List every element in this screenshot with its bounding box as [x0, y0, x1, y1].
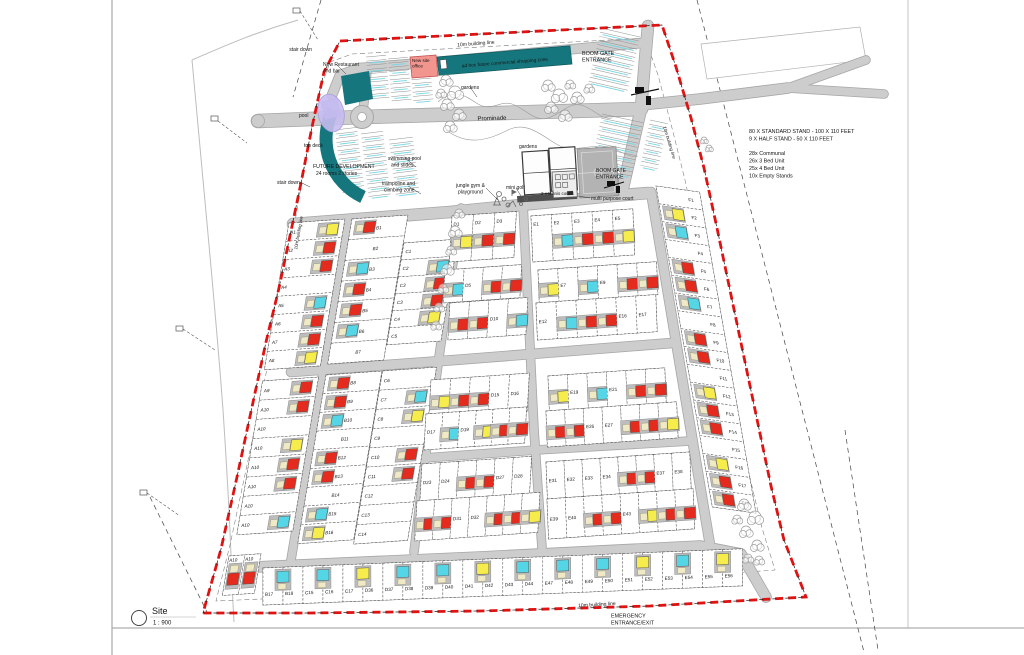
lot-label-E40: E40	[568, 515, 577, 521]
lot-label-C17: C17	[345, 588, 354, 593]
lot-label-C15: C15	[305, 590, 314, 595]
lot-D28: D28	[511, 456, 531, 494]
annotation-27: multi purpose court	[591, 196, 634, 202]
lot-A10: A10	[237, 512, 296, 535]
lot-E32: E32	[564, 459, 583, 497]
lot-B16: B16	[298, 521, 357, 544]
lot-B7: B7	[328, 339, 387, 364]
survey-monument-icon	[140, 490, 147, 495]
tree-icon	[757, 544, 765, 552]
lot-label-D32: D32	[470, 515, 479, 521]
lot-label-E43: E43	[623, 511, 632, 517]
lot-label-D5: D5	[465, 283, 472, 288]
lot-label-D10: D10	[490, 316, 499, 322]
lot-E20: E20	[587, 372, 609, 408]
lot-E34: E34	[600, 457, 619, 495]
site-plan-drawing: A1A2A3A4A5A6A7A8A9A10A10A10A10A10A10A10B…	[0, 0, 1024, 655]
tree-icon	[559, 115, 566, 122]
annotation-5: and bar	[323, 69, 340, 75]
lot-label-E26: E26	[586, 424, 595, 430]
lot-label-A10: A10	[260, 407, 269, 413]
annotation-10: pool	[299, 113, 308, 119]
annotation-11: Prominade	[477, 116, 507, 123]
lot-D9: D9	[467, 300, 490, 338]
lot-E12: E12	[536, 302, 557, 340]
tree-icon	[450, 125, 458, 133]
lot-label-E52: E52	[645, 576, 654, 581]
lot-E31: E31	[546, 461, 565, 499]
lot-label-D42: D42	[485, 583, 494, 588]
annotation-7: office	[412, 64, 423, 69]
annotation-23: mini golf	[506, 185, 525, 191]
lot-label-E1: E1	[533, 221, 539, 226]
annotation-40: 1 : 900	[153, 621, 172, 627]
lot-label-E49: E49	[585, 579, 594, 584]
lot-label-E34: E34	[603, 474, 612, 480]
lot-E4: E4	[592, 210, 615, 257]
lot-label-D40: D40	[445, 584, 454, 589]
lot-D23: D23	[420, 463, 440, 501]
lot-label-A10: A10	[257, 426, 266, 432]
lot-E18: E18	[548, 375, 570, 411]
lot-D7: D7	[500, 265, 523, 299]
lot-label-E12: E12	[539, 319, 548, 325]
tree-icon	[438, 288, 444, 294]
annotation-2: ENTRANCE	[582, 58, 612, 64]
lot-label-D17: D17	[427, 429, 436, 435]
lot-label-E19: E19	[570, 389, 579, 395]
block-corner-pair: A10A10	[222, 554, 261, 596]
drawing-number-circle	[132, 611, 147, 626]
lot-label-D36: D36	[365, 588, 374, 593]
lot-label-D39: D39	[425, 585, 434, 590]
lot-D6: D6	[481, 266, 504, 300]
lot-D24: D24	[438, 461, 458, 499]
lot-E2: E2	[551, 213, 574, 260]
tree-icon	[738, 504, 745, 511]
lot-E39: E39	[547, 498, 567, 539]
tree-icon	[755, 516, 764, 525]
annotation-33: 10x Empty Stands	[749, 174, 793, 180]
lot-E22: E22	[626, 369, 648, 405]
annotation-15: stair down	[277, 180, 300, 186]
tree-icon	[431, 325, 437, 331]
lot-E27: E27	[602, 406, 622, 443]
lot-D5: D5	[462, 267, 483, 301]
tree-icon	[446, 79, 454, 87]
annotation-4: New Restaurant	[323, 62, 359, 68]
tree-icon	[551, 94, 559, 102]
lot-D32: D32	[467, 496, 487, 537]
lot-label-E17: E17	[638, 312, 647, 318]
annotation-31: 26x 3 Bed Unit	[749, 159, 785, 165]
lot-label-D28: D28	[514, 473, 523, 479]
lot-label-D15: D15	[491, 392, 500, 398]
lot-label-E38: E38	[674, 469, 683, 475]
lot-E8: E8	[577, 266, 599, 300]
lot-B6: B6	[331, 319, 390, 344]
lot-E38: E38	[672, 452, 691, 490]
tree-icon	[565, 84, 571, 90]
lot-D11: D11	[506, 297, 529, 335]
tree-icon	[548, 84, 556, 92]
lot-label-A10: A10	[229, 557, 238, 563]
lot-E23: E23	[645, 368, 667, 404]
tree-icon	[584, 88, 590, 94]
tree-icon	[449, 231, 456, 238]
lot-E28: E28	[620, 404, 642, 441]
tree-icon	[447, 103, 455, 111]
tree-icon	[446, 250, 452, 256]
lot-label-B11: B11	[340, 436, 349, 442]
lot-D12: D12	[429, 379, 452, 418]
lot-E15: E15	[596, 297, 618, 335]
tree-icon	[754, 560, 760, 566]
lot-D8: D8	[448, 302, 471, 340]
lot-label-D24: D24	[441, 478, 450, 484]
tree-icon	[440, 80, 447, 87]
survey-monument-icon	[176, 326, 183, 331]
lot-label-D2: D2	[475, 220, 482, 225]
annotation-17: and slides	[391, 163, 414, 169]
lot-label-E16: E16	[618, 313, 627, 319]
lot-label-B14: B14	[331, 492, 340, 498]
annotation-37: EMERGENCY	[611, 614, 646, 620]
lot-label-E27: E27	[605, 422, 614, 428]
lot-E17: E17	[636, 295, 657, 333]
lot-label-E51: E51	[625, 577, 634, 582]
lot-label-E48: E48	[565, 580, 574, 585]
lot-label-E55: E55	[705, 574, 714, 579]
lot-D27: D27	[493, 458, 513, 496]
lot-label-B16: B16	[325, 530, 334, 536]
lot-E5: E5	[612, 209, 635, 256]
annotation-39: Site	[152, 606, 168, 616]
annotation-1: BOOM GATE	[582, 51, 615, 57]
lot-label-B15: B15	[328, 511, 337, 517]
tree-icon	[700, 140, 704, 144]
tree-icon	[571, 97, 578, 104]
lot-E9: E9	[597, 264, 618, 298]
tree-icon	[542, 85, 549, 92]
lot-label-C14: C14	[358, 532, 368, 538]
annotation-24: 2 x tennis courts	[541, 191, 575, 196]
lot-label-C11: C11	[367, 474, 376, 480]
annotation-14: 24 rooms 2 stories	[316, 171, 358, 177]
lot-label-E53: E53	[665, 576, 674, 581]
block-E-row-3: E12E13E14E15E16E17	[536, 295, 657, 340]
lot-label-A10: A10	[254, 446, 263, 452]
annotation-12: top deck	[304, 143, 323, 149]
annotation-13: FUTURE DEVELOPMENT	[313, 164, 376, 170]
site-plan-sheet: A1A2A3A4A5A6A7A8A9A10A10A10A10A10A10A10B…	[0, 0, 1024, 655]
lot-label-C10: C10	[371, 455, 381, 461]
tree-icon	[565, 114, 573, 122]
annotation-3: stair down	[289, 47, 312, 53]
tree-icon	[732, 519, 738, 525]
annotation-9: gardens	[461, 85, 480, 91]
lot-E3: E3	[572, 212, 595, 259]
tree-icon	[441, 104, 448, 111]
lot-label-E33: E33	[585, 475, 594, 481]
annotation-19: trampoline and	[382, 181, 415, 187]
lot-label-E2: E2	[554, 220, 560, 225]
lot-E14: E14	[576, 299, 598, 337]
lot-D16: D16	[508, 373, 530, 412]
lot-label-E9: E9	[600, 280, 606, 285]
lot-label-B17: B17	[265, 592, 274, 597]
tree-icon	[447, 91, 455, 99]
lot-label-D23: D23	[423, 480, 432, 486]
lot-B3: B3	[342, 257, 401, 282]
tree-icon	[447, 268, 455, 276]
lot-label-A10: A10	[244, 503, 253, 509]
annotation-26: ENTRANCE	[596, 175, 624, 181]
lot-E37: E37	[654, 453, 673, 491]
lot-label-A10: A10	[245, 556, 254, 562]
annotation-25: BOOM GATE	[596, 168, 627, 174]
lot-E42: E42	[601, 494, 624, 535]
tree-icon	[751, 545, 758, 552]
block-D-row-3: D8D9D10D11	[448, 297, 529, 339]
lot-E46: E46	[674, 489, 697, 530]
block-D-row-7: D29D30D31D32D33D34D35	[414, 492, 542, 541]
lot-label-A10: A10	[247, 484, 256, 490]
tree-icon	[744, 503, 752, 511]
annotation-21: jungle gym &	[455, 183, 486, 189]
lot-E10: E10	[617, 263, 639, 297]
annotation-16: swimming pool	[388, 156, 421, 162]
tree-icon	[454, 213, 460, 219]
lot-B1: B1	[349, 215, 408, 240]
tree-icon	[743, 558, 749, 564]
lot-label-B10: B10	[344, 417, 353, 423]
tree-icon	[453, 114, 460, 121]
tree-icon	[455, 230, 463, 238]
lot-D15: D15	[488, 374, 510, 413]
tree-icon	[747, 516, 755, 524]
lot-label-D43: D43	[505, 582, 514, 587]
lot-label-D19: D19	[460, 427, 469, 433]
lot-E13: E13	[556, 300, 578, 338]
lot-label-D27: D27	[496, 475, 505, 481]
lot-E25: E25	[564, 408, 586, 445]
annotation-20: climbing zone	[384, 188, 415, 194]
annotation-28: 80 X STANDARD STAND - 100 X 110 FEET	[749, 129, 855, 135]
lot-label-D38: D38	[405, 586, 414, 591]
lot-label-C16: C16	[325, 589, 334, 594]
lot-label-C13: C13	[361, 512, 371, 518]
lot-label-E7: E7	[560, 283, 566, 288]
annotation-6: New site	[412, 58, 430, 63]
restaurant-building	[341, 71, 373, 105]
tree-icon	[459, 113, 467, 121]
lot-label-D16: D16	[510, 391, 519, 397]
lot-label-E54: E54	[685, 575, 694, 580]
lot-D2: D2	[471, 213, 495, 260]
lot-E24: E24	[545, 410, 567, 447]
tree-icon	[434, 307, 440, 313]
annotation-29: 9 X HALF STAND - 50 X 110 FEET	[749, 137, 834, 143]
lot-label-B12: B12	[337, 455, 346, 461]
lot-label-D37: D37	[385, 587, 394, 592]
lot-E30: E30	[657, 402, 679, 439]
lot-A8: A8	[264, 347, 323, 369]
lot-label-B13: B13	[334, 474, 343, 480]
lot-label-E3: E3	[574, 219, 580, 224]
lot-label-E39: E39	[550, 516, 559, 522]
tree-icon	[455, 91, 464, 100]
annotation-38: ENTRANCE/EXIT	[611, 621, 655, 627]
lot-B4: B4	[338, 277, 397, 302]
lot-E21: E21	[606, 371, 627, 407]
lot-B2: B2	[345, 236, 404, 261]
lot-E33: E33	[582, 458, 601, 496]
lot-label-D44: D44	[525, 581, 534, 586]
lot-label-E32: E32	[567, 476, 576, 482]
lot-D13: D13	[448, 377, 471, 416]
tree-icon	[746, 530, 754, 538]
annotation-32: 25x 4 Bed Unit	[749, 166, 785, 172]
annotation-30: 28x Communal	[749, 151, 785, 157]
lot-label-A10: A10	[251, 465, 260, 471]
lot-label-E56: E56	[725, 573, 734, 578]
tree-icon	[441, 269, 448, 276]
annotation-22: playground	[458, 190, 483, 196]
lot-D3: D3	[492, 211, 516, 258]
lot-label-B18: B18	[285, 591, 294, 596]
block-E-row-1: E1E2E3E4E5	[531, 209, 635, 262]
block-D-row-5: D17D18D19D20D21D22	[424, 407, 529, 450]
lot-E1: E1	[531, 215, 553, 262]
lot-E40: E40	[565, 496, 585, 537]
lot-label-D3: D3	[496, 218, 503, 223]
tree-icon	[740, 531, 747, 538]
lot-label-E21: E21	[609, 387, 618, 393]
lot-E6: E6	[538, 269, 560, 303]
lot-E43: E43	[620, 493, 640, 534]
annotation-18: gardens	[519, 144, 538, 150]
lot-label-D41: D41	[465, 584, 474, 589]
annotation-35: 10m building line	[662, 126, 677, 160]
lot-label-C12: C12	[364, 493, 374, 499]
lot-label-E4: E4	[594, 217, 600, 222]
tree-icon	[436, 93, 442, 99]
tree-icon	[577, 96, 585, 104]
lot-label-E47: E47	[545, 580, 554, 585]
lot-label-E37: E37	[656, 470, 665, 476]
tree-icon	[551, 106, 559, 114]
lot-E7: E7	[558, 267, 579, 301]
lot-B5: B5	[335, 298, 394, 323]
tree-icon	[705, 148, 709, 152]
lot-D10: D10	[487, 299, 508, 337]
lot-label-E50: E50	[605, 578, 614, 583]
block-D-row-2: D4D5D6D7	[443, 265, 523, 303]
lot-label-D31: D31	[453, 516, 462, 522]
lot-D14: D14	[468, 376, 491, 415]
lot-E29: E29	[639, 403, 661, 440]
lot-D22: D22	[506, 407, 529, 444]
survey-monument-icon	[293, 8, 300, 13]
survey-monument-icon	[211, 116, 218, 121]
lot-E19: E19	[567, 373, 588, 409]
tree-icon	[444, 126, 451, 133]
lot-E26: E26	[583, 407, 603, 444]
lot-C14: C14	[354, 521, 411, 544]
lot-E16: E16	[616, 296, 637, 334]
lot-label-A10: A10	[241, 522, 250, 528]
lot-E11: E11	[637, 262, 659, 296]
lot-label-E31: E31	[549, 478, 558, 484]
lot-D31: D31	[450, 497, 470, 538]
tree-icon	[559, 94, 568, 103]
tree-icon	[545, 107, 552, 114]
lot-label-E5: E5	[615, 216, 621, 221]
